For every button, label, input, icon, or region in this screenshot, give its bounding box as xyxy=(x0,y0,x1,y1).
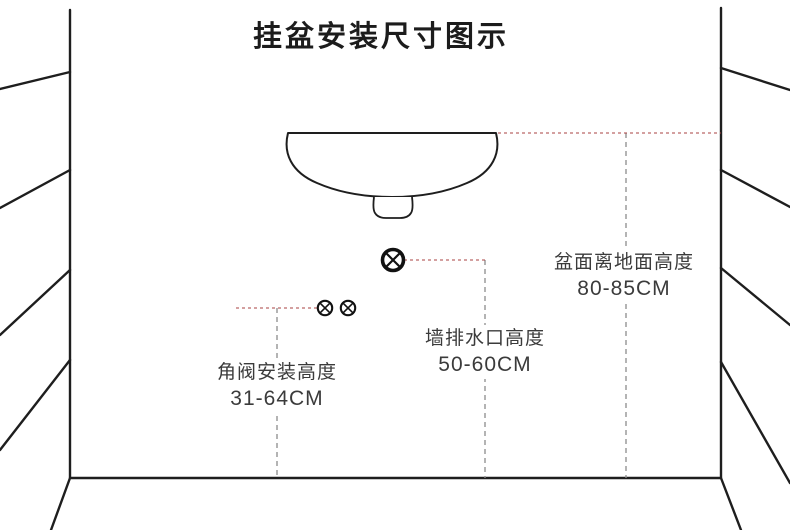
angle-valve-icon-right xyxy=(341,301,355,315)
angle-valve-circle-x-icons xyxy=(318,301,355,315)
basin-bowl-outline xyxy=(287,133,498,197)
basin-height-annotation: 盆面离地面高度 80-85CM xyxy=(548,249,700,303)
right-wall xyxy=(721,8,790,530)
valve-height-value: 31-64CM xyxy=(217,386,337,412)
diagram-canvas: 挂盆安装尺寸图示 盆面离地面高度 80-85CM 墙排水口高度 50-60CM … xyxy=(0,0,790,530)
basin-drain-trap xyxy=(373,197,412,218)
wall-hatch-line xyxy=(721,362,790,483)
wall-hatch-line xyxy=(0,270,70,335)
wall-hatch-line xyxy=(721,268,790,325)
drain-height-annotation: 墙排水口高度 50-60CM xyxy=(419,325,551,379)
wall-floor-corner-line xyxy=(51,478,70,530)
valve-height-annotation: 角阀安装高度 31-64CM xyxy=(211,359,343,413)
left-wall xyxy=(0,10,70,530)
wall-hatch-line xyxy=(0,72,70,89)
wall-hatch-line xyxy=(0,170,70,208)
basin-height-value: 80-85CM xyxy=(554,276,694,302)
basin-drawing xyxy=(287,133,498,218)
wall-hatch-line xyxy=(721,68,790,90)
wall-hatch-line xyxy=(0,360,70,450)
basin-height-label: 盆面离地面高度 xyxy=(554,250,694,276)
drain-outlet-circle-x-icon xyxy=(383,250,404,271)
wall-hatch-line xyxy=(721,170,790,207)
drain-height-label: 墙排水口高度 xyxy=(425,326,545,352)
wall-floor-corner-line xyxy=(721,478,741,530)
diagram-title: 挂盆安装尺寸图示 xyxy=(253,13,509,55)
valve-height-label: 角阀安装高度 xyxy=(217,360,337,386)
drain-height-value: 50-60CM xyxy=(425,352,545,378)
angle-valve-icon-left xyxy=(318,301,332,315)
